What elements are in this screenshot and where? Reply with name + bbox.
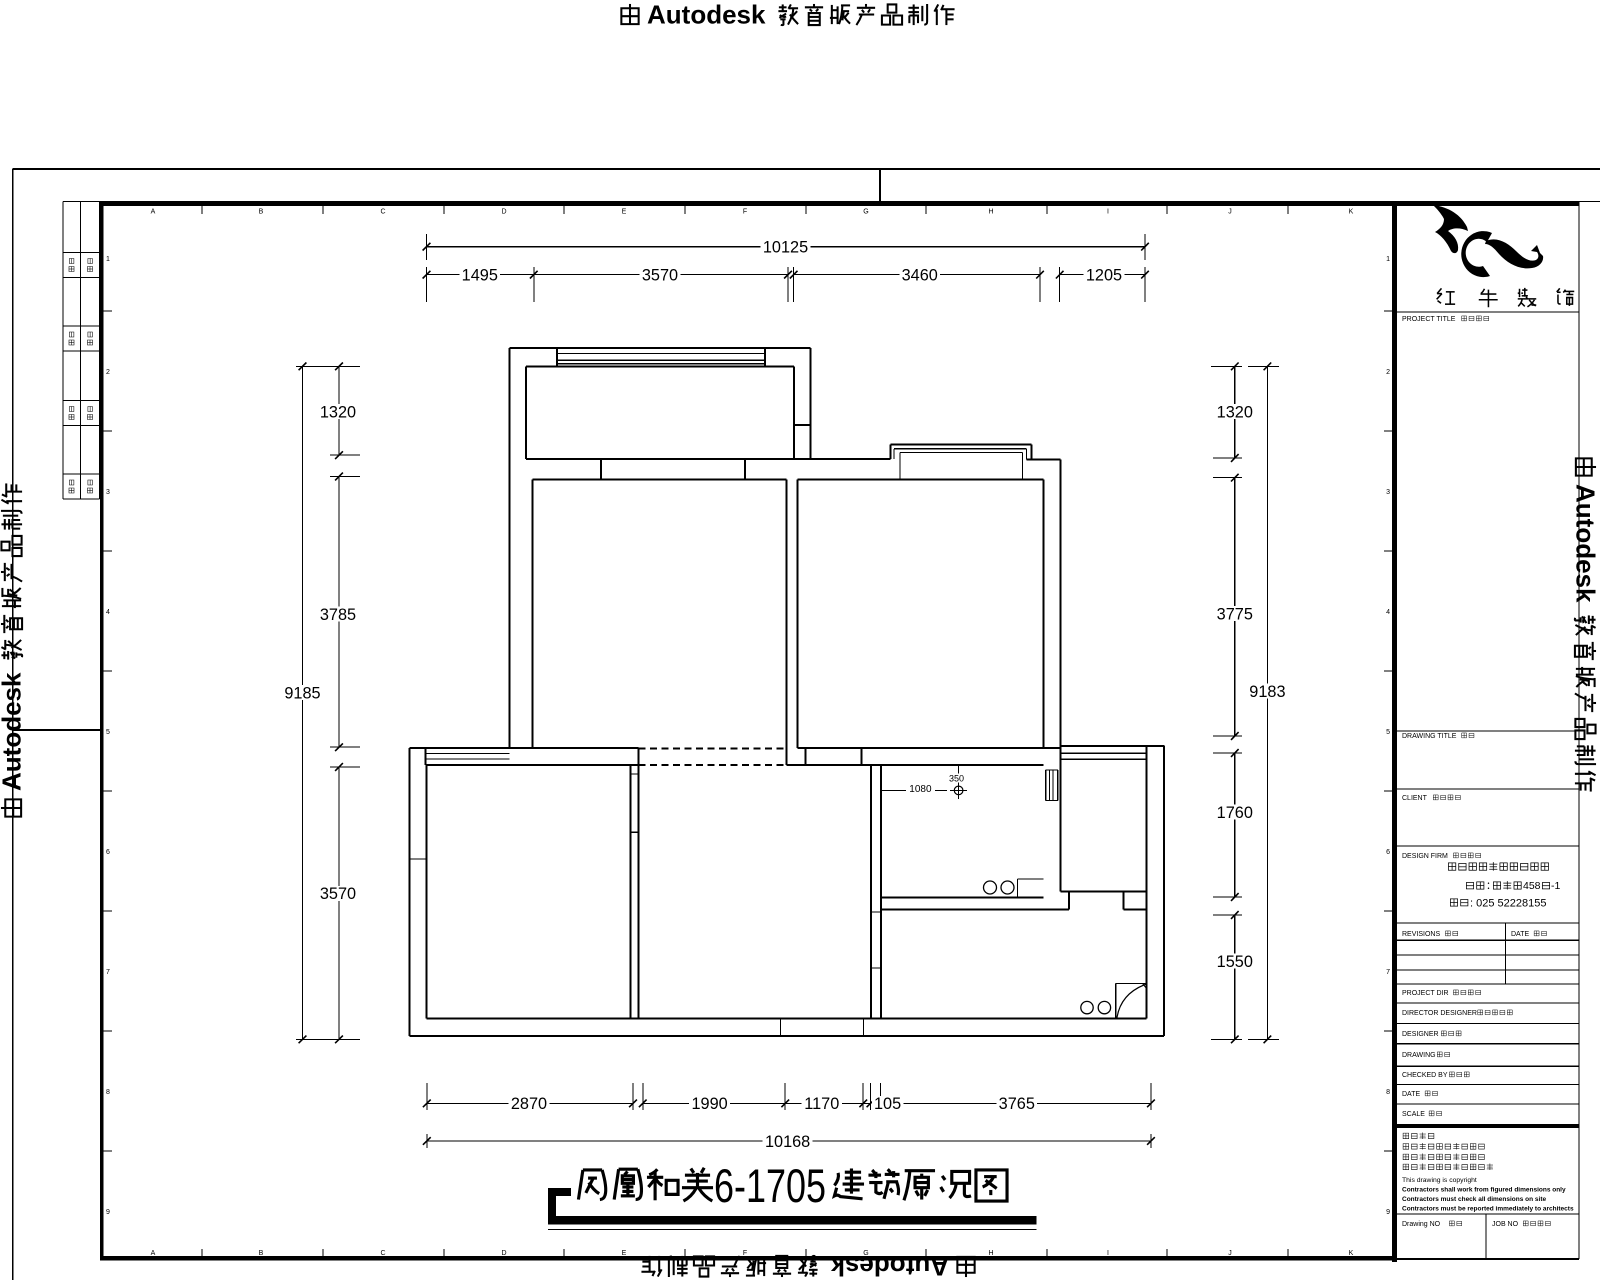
svg-text:2: 2 xyxy=(1386,369,1390,376)
svg-text:Contractors must be reported i: Contractors must be reported immediately… xyxy=(1402,1206,1574,1213)
svg-text:K: K xyxy=(1349,1250,1354,1257)
svg-text:1170: 1170 xyxy=(804,1095,839,1113)
svg-text:1760: 1760 xyxy=(1217,804,1253,822)
svg-text:1: 1 xyxy=(1386,256,1390,263)
svg-text:: 025 52228155: : 025 52228155 xyxy=(1470,898,1546,910)
svg-text:10168: 10168 xyxy=(765,1133,810,1151)
svg-text:I: I xyxy=(1107,1250,1109,1257)
svg-text:1: 1 xyxy=(106,256,110,263)
svg-text:PROJECT TITLE: PROJECT TITLE xyxy=(1402,316,1456,323)
svg-text:H: H xyxy=(988,209,993,216)
svg-text:J: J xyxy=(1228,1250,1232,1257)
svg-text:This drawing is copyright: This drawing is copyright xyxy=(1402,1177,1477,1184)
svg-text:3460: 3460 xyxy=(902,266,938,284)
svg-text:2870: 2870 xyxy=(511,1095,547,1113)
svg-text:I: I xyxy=(1107,209,1109,216)
svg-text:3570: 3570 xyxy=(642,266,678,284)
svg-text:458: 458 xyxy=(1523,880,1541,892)
svg-text:DESIGN FIRM: DESIGN FIRM xyxy=(1402,853,1448,860)
svg-text:DATE: DATE xyxy=(1402,1091,1420,1098)
svg-text:3570: 3570 xyxy=(320,885,356,903)
svg-text:PROJECT DIR: PROJECT DIR xyxy=(1402,990,1449,997)
svg-text:D: D xyxy=(501,209,506,216)
svg-text:9: 9 xyxy=(106,1209,110,1216)
svg-text:：: ： xyxy=(1486,881,1496,892)
svg-text:B: B xyxy=(259,1250,264,1257)
svg-text:105: 105 xyxy=(874,1095,901,1113)
svg-text:H: H xyxy=(988,1250,993,1257)
svg-text:1320: 1320 xyxy=(320,403,356,421)
svg-text:1495: 1495 xyxy=(462,266,498,284)
svg-text:8: 8 xyxy=(1386,1089,1390,1096)
svg-text:7: 7 xyxy=(106,969,110,976)
svg-text:E: E xyxy=(622,1250,627,1257)
svg-text:DRAWING TITLE: DRAWING TITLE xyxy=(1402,733,1457,740)
svg-text:350: 350 xyxy=(949,774,964,784)
svg-text:3775: 3775 xyxy=(1217,605,1253,623)
svg-text:DRAWING: DRAWING xyxy=(1402,1052,1436,1059)
svg-text:F: F xyxy=(743,209,747,216)
svg-text:1990: 1990 xyxy=(691,1095,727,1113)
svg-text:B: B xyxy=(259,209,264,216)
svg-text:Contractors must check all dim: Contractors must check all dimensions on… xyxy=(1402,1196,1547,1203)
svg-text:DATE: DATE xyxy=(1511,931,1529,938)
svg-text:1550: 1550 xyxy=(1217,953,1253,971)
svg-text:G: G xyxy=(863,1250,868,1257)
svg-text:Drawing NO: Drawing NO xyxy=(1402,1221,1441,1228)
svg-text:F: F xyxy=(743,1250,747,1257)
svg-text:6: 6 xyxy=(1386,849,1390,856)
svg-text:E: E xyxy=(622,209,627,216)
svg-text:-1: -1 xyxy=(1551,880,1560,892)
svg-text:6-1705: 6-1705 xyxy=(714,1159,826,1212)
svg-text:5: 5 xyxy=(106,729,110,736)
svg-text:4: 4 xyxy=(106,609,110,616)
svg-text:C: C xyxy=(380,1250,385,1257)
svg-text:6: 6 xyxy=(106,849,110,856)
svg-text:1080: 1080 xyxy=(909,784,932,795)
svg-text:7: 7 xyxy=(1386,969,1390,976)
svg-text:8: 8 xyxy=(106,1089,110,1096)
svg-text:3: 3 xyxy=(106,489,110,496)
svg-text:DESIGNER: DESIGNER xyxy=(1402,1031,1439,1038)
svg-text:3765: 3765 xyxy=(999,1095,1035,1113)
svg-text:A: A xyxy=(151,1250,156,1257)
svg-text:G: G xyxy=(863,209,868,216)
svg-text:SCALE: SCALE xyxy=(1402,1111,1425,1118)
svg-text:2: 2 xyxy=(106,369,110,376)
svg-text:J: J xyxy=(1228,209,1232,216)
svg-text:10125: 10125 xyxy=(763,239,808,257)
svg-text:4: 4 xyxy=(1386,609,1390,616)
svg-text:9185: 9185 xyxy=(284,684,320,702)
svg-text:D: D xyxy=(501,1250,506,1257)
svg-text:9: 9 xyxy=(1386,1209,1390,1216)
svg-text:3785: 3785 xyxy=(320,606,356,624)
svg-text:REVISIONS: REVISIONS xyxy=(1402,931,1440,938)
svg-text:1205: 1205 xyxy=(1086,266,1122,284)
svg-text:1320: 1320 xyxy=(1217,403,1253,421)
svg-text:Contractors shall work from fi: Contractors shall work from figured dime… xyxy=(1402,1187,1566,1194)
svg-text:DIRECTOR DESIGNER: DIRECTOR DESIGNER xyxy=(1402,1010,1477,1017)
svg-text:3: 3 xyxy=(1386,489,1390,496)
svg-text:K: K xyxy=(1349,209,1354,216)
svg-text:5: 5 xyxy=(1386,729,1390,736)
svg-text:CHECKED BY: CHECKED BY xyxy=(1402,1072,1448,1079)
svg-text:CLIENT: CLIENT xyxy=(1402,795,1428,802)
svg-text:JOB NO: JOB NO xyxy=(1492,1221,1519,1228)
svg-text:A: A xyxy=(151,209,156,216)
svg-text:C: C xyxy=(380,209,385,216)
svg-text:9183: 9183 xyxy=(1249,683,1285,701)
